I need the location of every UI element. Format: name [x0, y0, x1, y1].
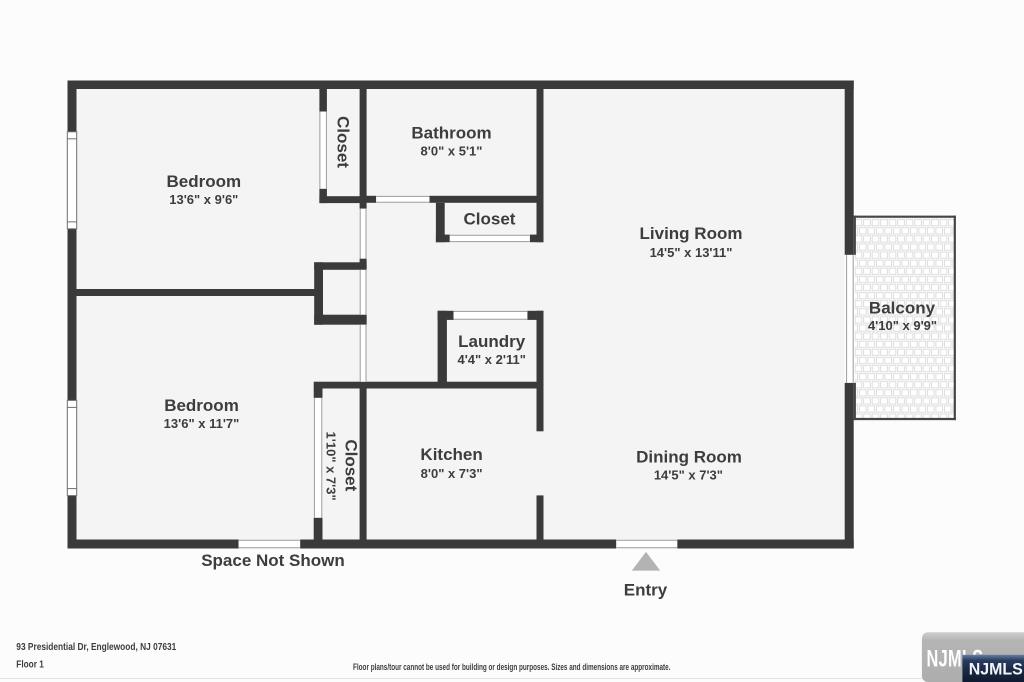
svg-text:Living Room: Living Room [640, 224, 743, 243]
svg-text:Bedroom: Bedroom [166, 172, 241, 191]
svg-text:14'5" x 7'3": 14'5" x 7'3" [654, 467, 723, 482]
svg-text:93 Presidential Dr, Englewood,: 93 Presidential Dr, Englewood, NJ 07631 [16, 641, 176, 653]
svg-text:Dining Room: Dining Room [636, 447, 742, 466]
svg-text:1'10" x 7'3": 1'10" x 7'3" [324, 432, 339, 501]
svg-text:Kitchen: Kitchen [420, 445, 482, 464]
svg-text:NJMLS: NJMLS [969, 660, 1023, 679]
svg-text:Laundry: Laundry [458, 332, 526, 351]
svg-text:Closet: Closet [341, 439, 360, 491]
svg-text:Floor plans/tour cannot be use: Floor plans/tour cannot be used for buil… [353, 662, 671, 672]
svg-text:Bedroom: Bedroom [164, 396, 239, 415]
svg-text:Balcony: Balcony [869, 299, 936, 318]
svg-text:Bathroom: Bathroom [411, 124, 491, 143]
svg-text:8'0" x 7'3": 8'0" x 7'3" [421, 466, 483, 481]
svg-text:Entry: Entry [624, 581, 668, 600]
svg-text:13'6" x 11'7": 13'6" x 11'7" [164, 416, 240, 431]
svg-text:Floor 1: Floor 1 [16, 658, 44, 670]
svg-text:14'5" x 13'11": 14'5" x 13'11" [650, 245, 733, 260]
svg-text:Closet: Closet [333, 116, 352, 168]
svg-text:13'6" x 9'6": 13'6" x 9'6" [169, 192, 238, 207]
svg-text:4'10" x 9'9": 4'10" x 9'9" [868, 318, 937, 333]
svg-text:4'4" x 2'11": 4'4" x 2'11" [457, 352, 525, 367]
svg-text:Space Not Shown: Space Not Shown [201, 551, 345, 570]
svg-text:8'0" x 5'1": 8'0" x 5'1" [421, 143, 483, 158]
svg-text:Closet: Closet [464, 209, 516, 228]
